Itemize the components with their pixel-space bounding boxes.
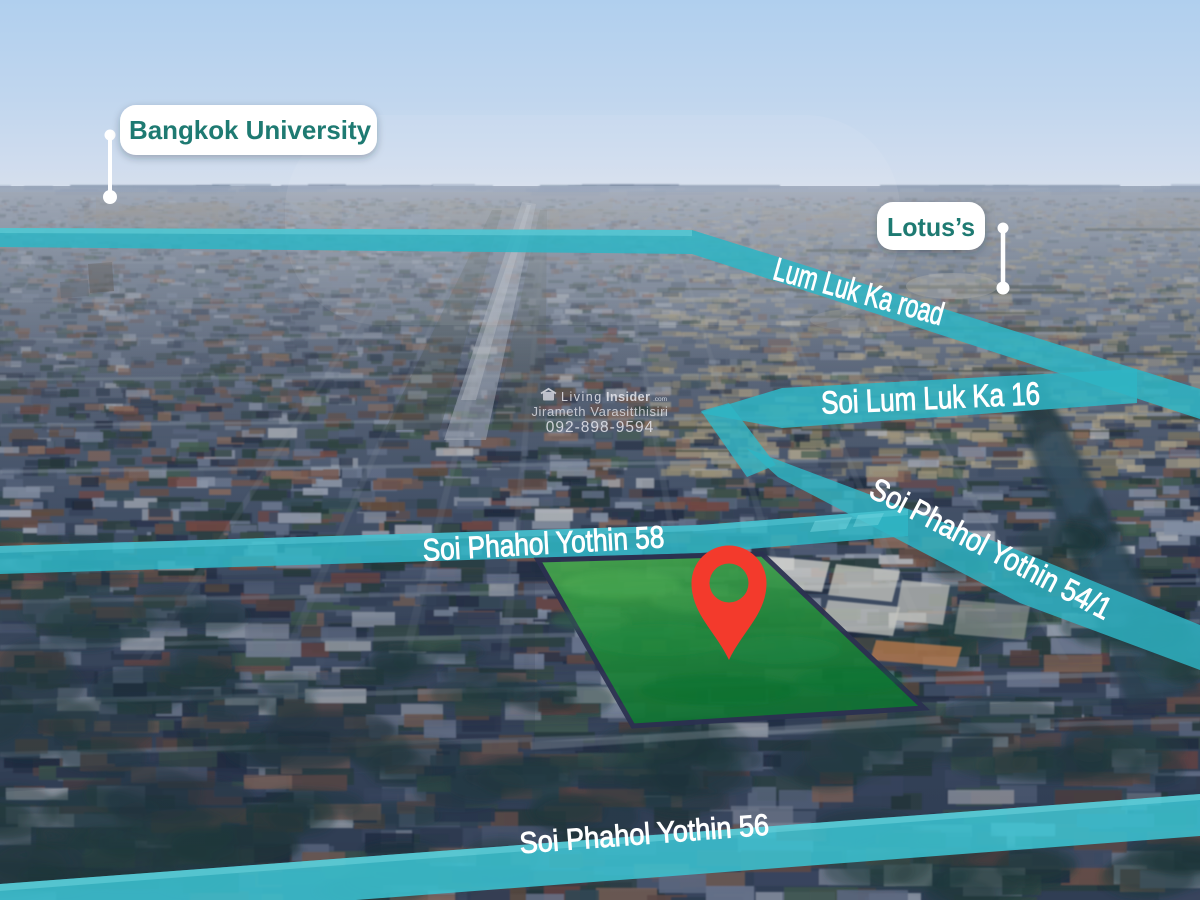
svg-text:Bangkok University: Bangkok University: [129, 115, 372, 145]
svg-text:092-898-9594: 092-898-9594: [546, 419, 655, 436]
svg-text:.com: .com: [653, 396, 667, 403]
svg-text:Jirameth Varasitthisiri: Jirameth Varasitthisiri: [531, 404, 668, 419]
svg-text:Living: Living: [561, 390, 603, 404]
svg-text:Insider: Insider: [606, 390, 651, 404]
svg-text:Lotus’s: Lotus’s: [887, 212, 975, 242]
